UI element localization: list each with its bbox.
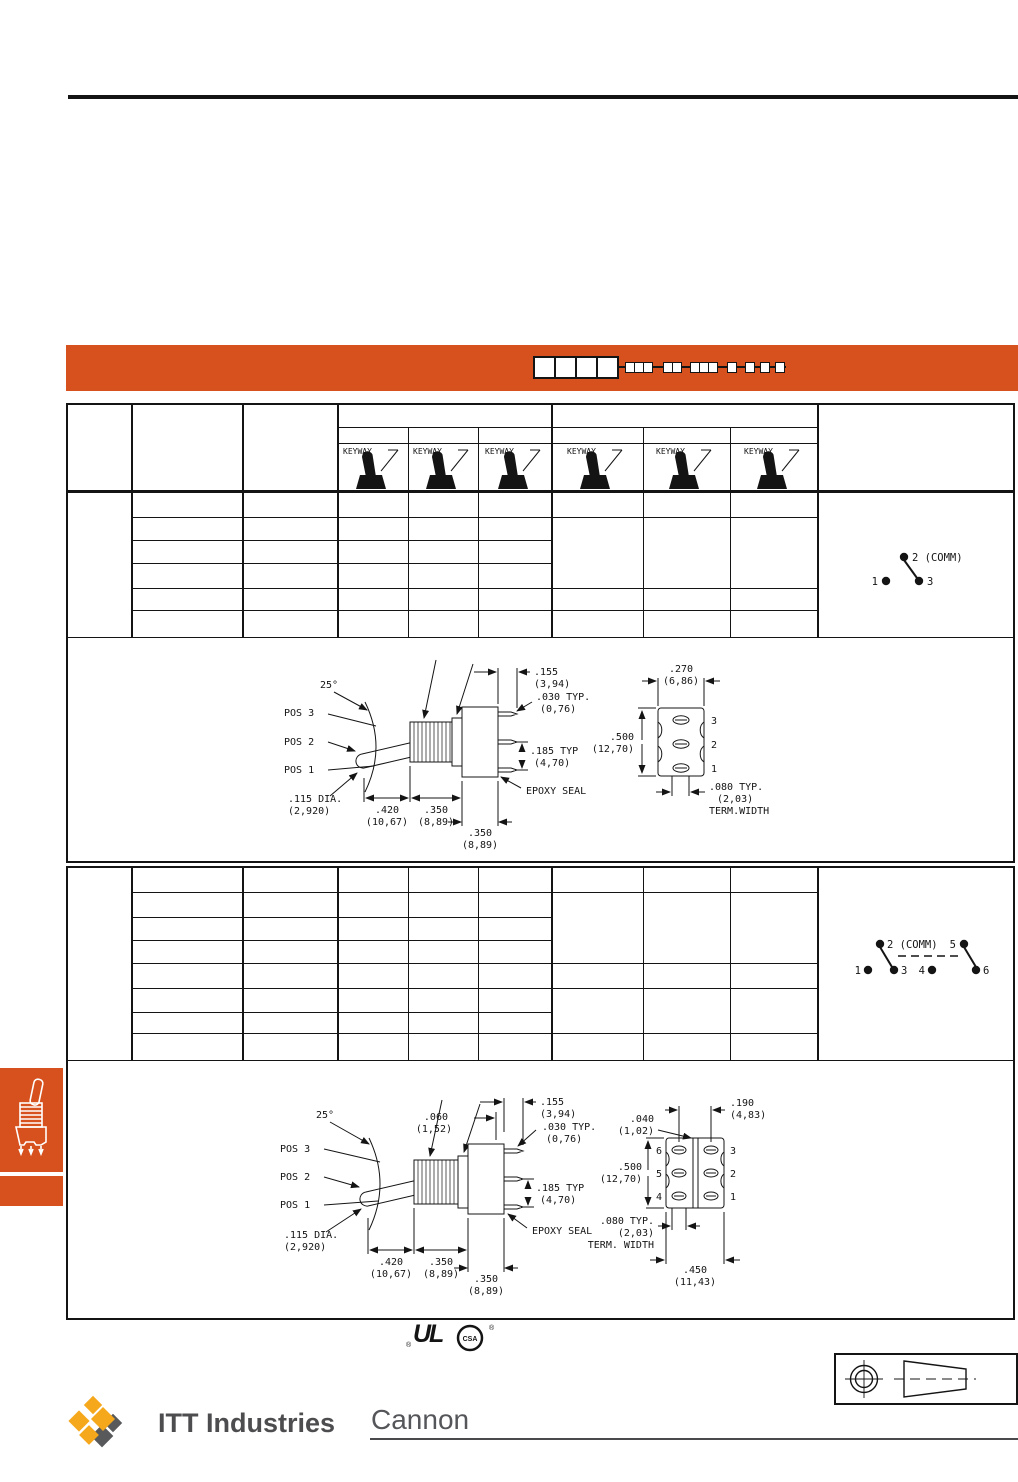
- grid-line: [132, 610, 818, 611]
- grid-line: [551, 403, 553, 637]
- grid-line: [242, 403, 244, 637]
- pn-box-large: [575, 356, 598, 379]
- terminal-dot: [972, 966, 980, 974]
- pn-box-small: [760, 362, 770, 373]
- dim-label: 25°: [320, 680, 338, 691]
- dimension-drawing-double-pole: 25° POS 3 POS 2 POS 1 .115 DIA. (2,920) …: [268, 1072, 788, 1318]
- dim-label: .350: [468, 828, 492, 839]
- dim-label: (8,89): [468, 1286, 504, 1297]
- terminal-dot: [890, 966, 898, 974]
- grid-line: [643, 427, 644, 637]
- grid-line: [478, 427, 479, 637]
- dim-label: .350: [424, 805, 448, 816]
- grid-line: [817, 403, 819, 637]
- ul-logo: UL: [413, 1320, 442, 1349]
- toggle-icon: [356, 475, 386, 489]
- circuit-label: 1: [872, 576, 878, 588]
- terminal-dot: [864, 966, 872, 974]
- grid-line: [132, 963, 818, 964]
- dim-label: .080 TYP.: [709, 782, 763, 793]
- dim-label: .040: [630, 1114, 654, 1125]
- grid-line: [408, 427, 409, 637]
- keyway-cell: KEYWAY: [483, 444, 547, 490]
- terminal-dot: [876, 940, 884, 948]
- grid-line: [66, 490, 1015, 493]
- dim-label: (8,89): [418, 817, 454, 828]
- grid-line: [730, 427, 731, 637]
- dim-label: .115 DIA.: [288, 794, 342, 805]
- circuit-label: 3: [927, 576, 933, 588]
- grid-line: [132, 517, 818, 518]
- keyway-cell: KEYWAY: [411, 444, 475, 490]
- circuit-diagram-spdt: 2 (COMM) 1 3: [858, 543, 1014, 593]
- dim-label: .190: [730, 1098, 754, 1109]
- dim-label: (2,920): [284, 1242, 326, 1253]
- terminal-number: 5: [656, 1169, 662, 1180]
- pn-box-small: [727, 362, 737, 373]
- catalog-page: KEYWAY KEYWAY KEYWAY KEYWAY KEYWAY KEYWA…: [0, 0, 1018, 1482]
- projection-symbol-box: [834, 1353, 1018, 1405]
- terminal-dot: [928, 966, 936, 974]
- dim-label: (2,03): [717, 794, 753, 805]
- dim-label: (1,52): [416, 1124, 452, 1135]
- dim-label: .030 TYP.: [536, 692, 590, 703]
- grid-line: [132, 1012, 552, 1013]
- dim-label: (8,89): [423, 1269, 459, 1280]
- dim-label: POS 2: [284, 737, 314, 748]
- terminal-number: 3: [711, 716, 717, 727]
- dim-label: (0,76): [540, 704, 576, 715]
- dim-label: (3,94): [534, 679, 570, 690]
- keyway-cell: KEYWAY: [341, 444, 405, 490]
- division-name: Cannon: [371, 1404, 469, 1436]
- dim-label: POS 3: [284, 708, 314, 719]
- dim-label: (12,70): [600, 1174, 642, 1185]
- company-name: ITT Industries: [158, 1408, 335, 1439]
- ul-registered-mark: ®: [406, 1342, 411, 1349]
- dim-label: .420: [379, 1257, 403, 1268]
- grid-line: [132, 917, 552, 918]
- terminal-number: 1: [730, 1192, 736, 1203]
- part-number-banner: [66, 345, 1018, 391]
- toggle-switch-icon: [8, 1076, 54, 1164]
- dim-label: .500: [618, 1162, 642, 1173]
- itt-logo: [66, 1394, 126, 1454]
- circuit-label: 3: [901, 965, 907, 977]
- toggle-icon: [757, 475, 787, 489]
- dim-label: (11,43): [674, 1277, 716, 1288]
- terminal-dot: [900, 553, 908, 561]
- dimension-drawing-single-pole: 25° POS 3 POS 2 POS 1 .115 DIA. (2,920) …: [268, 650, 788, 862]
- pn-box-small: [708, 362, 718, 373]
- pn-box-small: [745, 362, 755, 373]
- grid-line: [132, 892, 818, 893]
- dim-label: (2,03): [618, 1228, 654, 1239]
- pn-box-small: [643, 362, 653, 373]
- grid-line: [132, 540, 552, 541]
- dim-label: .080 TYP.: [600, 1216, 654, 1227]
- grid-line: [337, 403, 339, 637]
- terminal-dot: [960, 940, 968, 948]
- dim-label: 25°: [316, 1110, 334, 1121]
- grid-line: [338, 427, 818, 428]
- dim-label: .115 DIA.: [284, 1230, 338, 1241]
- dim-label: .155: [534, 667, 558, 678]
- circuit-label: 6: [983, 965, 989, 977]
- footer-rule: [370, 1438, 1018, 1440]
- circuit-diagram-dpdt: 2 (COMM) 5 1 3 4 6: [852, 932, 1016, 982]
- dim-label: POS 2: [280, 1172, 310, 1183]
- terminal-number: 4: [656, 1192, 662, 1203]
- keyway-cell: KEYWAY: [565, 444, 629, 490]
- dim-label: POS 1: [284, 765, 314, 776]
- dim-label: .185 TYP: [536, 1183, 584, 1194]
- circuit-label: 4: [919, 965, 925, 977]
- grid-line: [132, 588, 818, 589]
- grid-line: [132, 1033, 818, 1034]
- dim-label: (3,94): [540, 1109, 576, 1120]
- circuit-label: 5: [950, 939, 956, 951]
- toggle-icon: [669, 475, 699, 489]
- sidebar-category-tab[interactable]: [0, 1068, 63, 1172]
- dim-label: (10,67): [370, 1269, 412, 1280]
- dim-label: POS 1: [280, 1200, 310, 1211]
- dim-label: .030 TYP.: [542, 1122, 596, 1133]
- terminal-number: 6: [656, 1146, 662, 1157]
- dim-label: .060: [424, 1112, 448, 1123]
- grid-line: [132, 940, 552, 941]
- csa-registered-mark: ®: [489, 1325, 494, 1332]
- dim-label: (12,70): [592, 744, 634, 755]
- pn-box-small: [672, 362, 682, 373]
- terminal-number: 3: [730, 1146, 736, 1157]
- terminal-number: 2: [730, 1169, 736, 1180]
- keyway-cell: KEYWAY: [654, 444, 718, 490]
- circuit-label: 1: [855, 965, 861, 977]
- dim-label: (2,920): [288, 806, 330, 817]
- dim-label: .155: [540, 1097, 564, 1108]
- dim-label: (4,70): [540, 1195, 576, 1206]
- dim-label: POS 3: [280, 1144, 310, 1155]
- dim-label: (8,89): [462, 840, 498, 851]
- circuit-common-label: 2 (COMM): [887, 939, 938, 951]
- dim-label: EPOXY SEAL: [526, 786, 586, 797]
- terminal-dot: [882, 577, 890, 585]
- grid-line: [131, 403, 133, 637]
- svg-text:CSA: CSA: [463, 1336, 478, 1343]
- top-rule: [68, 95, 1018, 99]
- grid-line: [132, 563, 552, 564]
- grid-line: [132, 988, 818, 989]
- pn-box-large: [596, 356, 619, 379]
- toggle-icon: [580, 475, 610, 489]
- dim-label: TERM.WIDTH: [709, 806, 769, 817]
- keyway-cell: KEYWAY: [742, 444, 806, 490]
- terminal-number: 2: [711, 740, 717, 751]
- terminal-number: 1: [711, 764, 717, 775]
- dim-label: .270: [669, 664, 693, 675]
- dim-label: EPOXY SEAL: [532, 1226, 592, 1237]
- pn-box-large: [533, 356, 556, 379]
- dim-label: .420: [375, 805, 399, 816]
- dim-label: (1,02): [618, 1126, 654, 1137]
- pn-box-small: [775, 362, 785, 373]
- dim-label: .450: [683, 1265, 707, 1276]
- third-angle-projection-icon: [836, 1355, 1016, 1403]
- pn-box-large: [554, 356, 577, 379]
- dim-label: (0,76): [546, 1134, 582, 1145]
- dim-label: .500: [610, 732, 634, 743]
- dim-label: TERM. WIDTH: [588, 1240, 654, 1251]
- toggle-icon: [426, 475, 456, 489]
- grid-line: [66, 637, 1015, 638]
- terminal-dot: [915, 577, 923, 585]
- toggle-icon: [498, 475, 528, 489]
- dim-label: .350: [474, 1274, 498, 1285]
- dim-label: .350: [429, 1257, 453, 1268]
- dim-label: (6,86): [663, 676, 699, 687]
- circuit-common-label: 2 (COMM): [912, 552, 963, 564]
- dim-label: (4,83): [730, 1110, 766, 1121]
- dim-label: .185 TYP: [530, 746, 578, 757]
- sidebar-tab-blank[interactable]: [0, 1176, 63, 1206]
- dim-label: (4,70): [534, 758, 570, 769]
- grid-line: [66, 1060, 1015, 1061]
- dim-label: (10,67): [366, 817, 408, 828]
- csa-logo: CSA: [456, 1324, 488, 1356]
